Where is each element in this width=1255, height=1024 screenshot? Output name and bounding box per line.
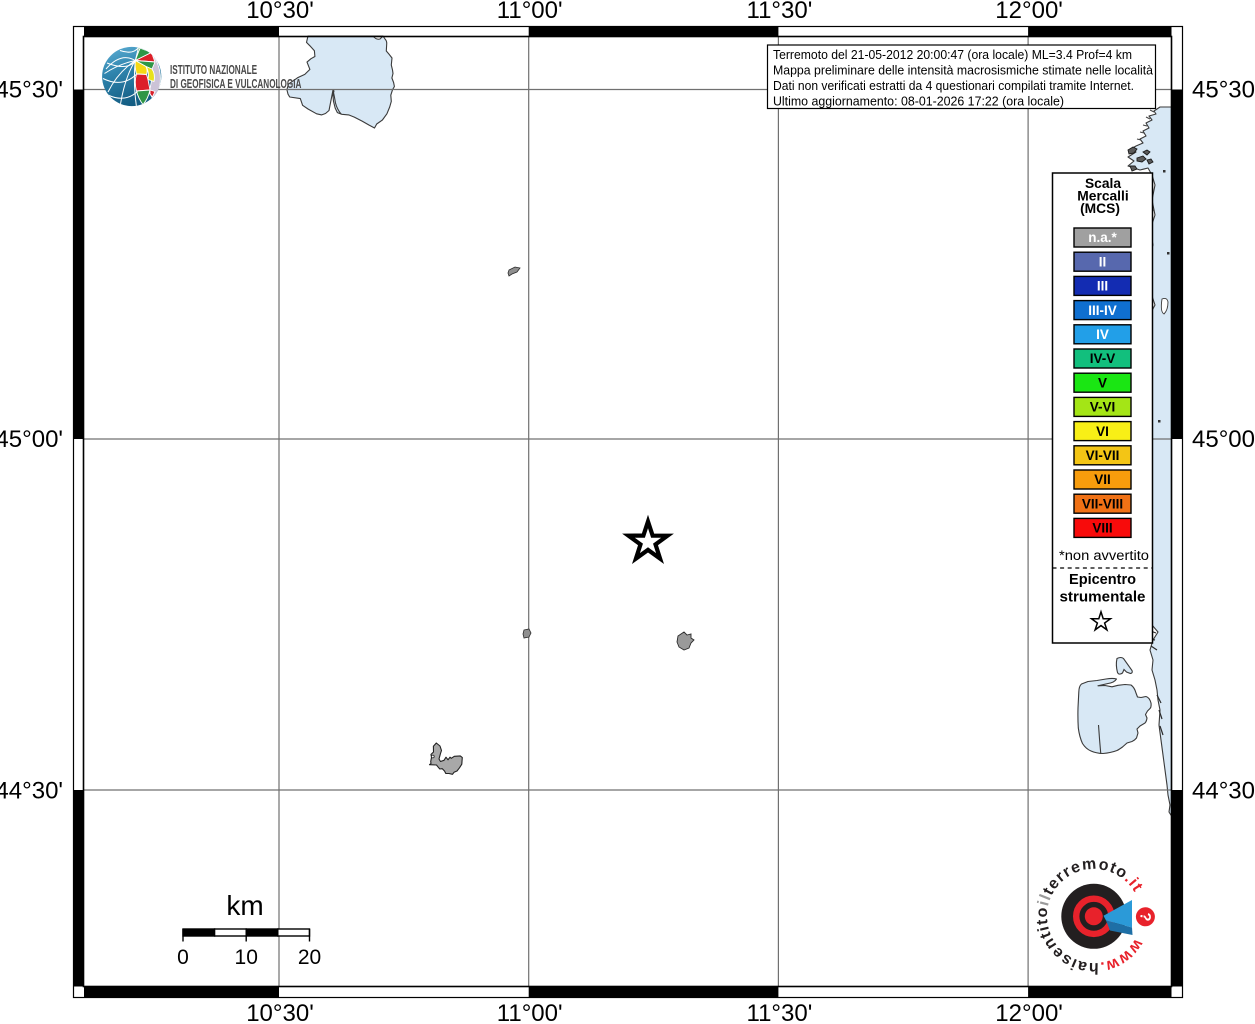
svg-text:Dati non verificati estratti d: Dati non verificati estratti da 4 questi… — [773, 78, 1134, 93]
svg-text:III-IV: III-IV — [1088, 303, 1117, 318]
svg-text:11°30': 11°30' — [747, 0, 813, 24]
svg-text:12°00': 12°00' — [995, 0, 1063, 24]
svg-text:10°30': 10°30' — [246, 1000, 314, 1024]
svg-text:VIII: VIII — [1092, 521, 1112, 536]
svg-text:44°30': 44°30' — [0, 777, 63, 804]
svg-text:VII: VII — [1094, 472, 1111, 487]
svg-text:VII-VIII: VII-VIII — [1082, 496, 1123, 511]
svg-text:IV: IV — [1096, 327, 1109, 342]
svg-text:44°30': 44°30' — [1192, 777, 1255, 804]
svg-text:Mappa preliminare delle intens: Mappa preliminare delle intensità macros… — [773, 63, 1154, 78]
svg-text:III: III — [1097, 279, 1108, 294]
svg-text:IV-V: IV-V — [1090, 351, 1116, 366]
svg-text:V: V — [1098, 375, 1107, 390]
svg-text:?: ? — [1136, 911, 1154, 922]
svg-text:10°30': 10°30' — [246, 0, 314, 24]
svg-text:Terremoto del 21-05-2012 20:00: Terremoto del 21-05-2012 20:00:47 (ora l… — [773, 47, 1132, 62]
svg-text:11°30': 11°30' — [747, 1000, 813, 1024]
svg-text:0: 0 — [177, 946, 189, 969]
svg-text:ISTITUTO NAZIONALE: ISTITUTO NAZIONALE — [170, 63, 257, 77]
svg-text:*non avvertito: *non avvertito — [1059, 548, 1149, 563]
svg-text:11°00': 11°00' — [497, 0, 563, 24]
svg-text:n.a.*: n.a.* — [1088, 230, 1117, 245]
svg-text:20: 20 — [298, 946, 321, 969]
svg-text:km: km — [226, 890, 263, 921]
svg-text:10: 10 — [235, 946, 258, 969]
svg-text:11°00': 11°00' — [497, 1000, 563, 1024]
svg-text:V-VI: V-VI — [1090, 400, 1116, 415]
svg-text:(MCS): (MCS) — [1080, 201, 1120, 216]
svg-text:VI: VI — [1096, 424, 1109, 439]
svg-text:VI-VII: VI-VII — [1086, 448, 1120, 463]
svg-text:Epicentro: Epicentro — [1069, 572, 1136, 588]
svg-text:Ultimo aggiornamento: 08-01-20: Ultimo aggiornamento: 08-01-2026 17:22 (… — [773, 94, 1064, 109]
svg-text:45°00': 45°00' — [0, 426, 63, 453]
svg-text:DI GEOFISICA E VULCANOLOGIA: DI GEOFISICA E VULCANOLOGIA — [170, 77, 302, 91]
svg-text:45°00': 45°00' — [1192, 426, 1255, 453]
svg-text:45°30': 45°30' — [0, 77, 63, 104]
svg-text:12°00': 12°00' — [995, 1000, 1063, 1024]
svg-text:45°30': 45°30' — [1192, 77, 1255, 104]
svg-text:II: II — [1099, 254, 1107, 269]
svg-text:strumentale: strumentale — [1060, 590, 1146, 606]
